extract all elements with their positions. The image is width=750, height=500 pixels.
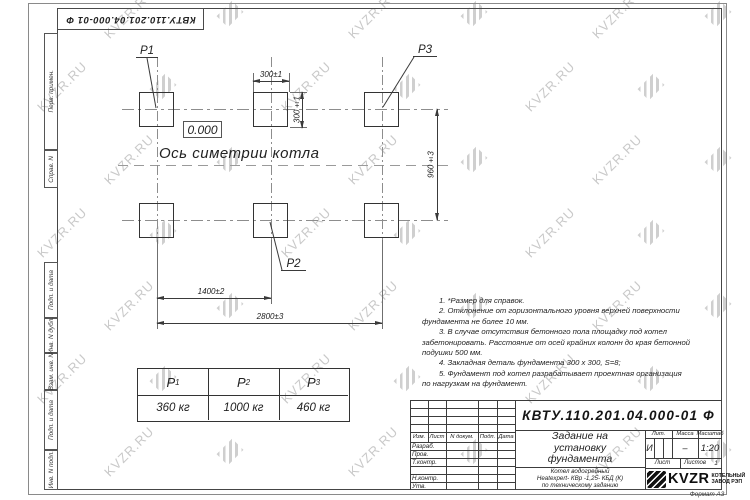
sheet-label: Лист	[645, 458, 680, 468]
symmetry-axis-label: Ось симетрии котла	[159, 145, 319, 162]
strip-label: Взам. инв. N	[48, 353, 55, 390]
extension-line	[157, 240, 158, 329]
sheets-label: Листов	[684, 460, 706, 466]
strip-label: Подп. и дата	[48, 270, 55, 310]
foundation-pad-p2	[253, 203, 288, 238]
scale-value: 1:20	[698, 438, 722, 458]
col-ndokum: N докум.	[446, 432, 478, 442]
load-table-value-p1: 360 кг	[138, 395, 208, 420]
level-mark-value: 0.000	[187, 123, 217, 137]
level-mark-box: 0.000	[183, 121, 222, 138]
note-line: по нагрузкам на фундамент.	[422, 379, 722, 389]
kvzr-logo-icon	[647, 471, 666, 488]
load-table-header-p2: P2	[208, 369, 279, 395]
drawing-sheet: КВТУ.110.201.04.000-01 Ф Перв. примен. С…	[0, 0, 750, 500]
strip-cell-perv-primen: Перв. примен.	[44, 33, 58, 150]
load-table-value-p3: 460 кг	[279, 395, 348, 420]
format-label: Формат А3	[683, 491, 731, 498]
dim-line-total-spacing	[157, 323, 382, 324]
dim-text-pad-height: 300±1	[292, 92, 302, 128]
mass-header: Масса	[672, 430, 698, 438]
row-empty	[410, 466, 448, 474]
dim-text-pad-width: 300±1	[245, 70, 297, 79]
foundation-pad-top-middle	[253, 92, 288, 127]
row-nkontr: Н.контр.	[410, 474, 448, 482]
strip-cell-podp-data-1: Подп. и дата	[44, 262, 58, 318]
point-label-p1: P1	[136, 45, 158, 58]
note-line: забетонировать. Расстояние от осей крайн…	[422, 338, 722, 348]
strip-label: Перв. примен.	[48, 70, 55, 112]
technical-notes: 1. *Размер для справок. 2. Отклонение от…	[422, 296, 722, 390]
col-list: Лист	[428, 432, 446, 442]
col-izm: Изм.	[410, 432, 428, 442]
dim-text-row-spacing: 960±3	[426, 143, 436, 187]
col-podp: Подп.	[478, 432, 497, 442]
row-prov: Пров.	[410, 450, 448, 458]
extension-line	[271, 240, 272, 304]
note-line: 4. Закладная деталь фундамента 300 х 300…	[422, 358, 722, 368]
extension-line	[382, 240, 383, 329]
dim-line-pad-width	[253, 81, 289, 82]
strip-label: Подп. и дата	[48, 400, 55, 440]
note-line: 2. Отклонение от горизонтального уровня …	[422, 306, 722, 316]
kvzr-logo-text: KVZR	[668, 471, 709, 487]
title-block-doc-number: КВТУ.110.201.04.000-01 Ф	[515, 400, 722, 430]
top-stamp-doc-number: КВТУ.110.201.04.000-01 Ф	[66, 14, 196, 25]
point-label-p3: P3	[413, 44, 437, 57]
scale-header: Масштаб	[698, 430, 722, 438]
dim-line-mid-spacing	[157, 298, 271, 299]
foundation-pad-p1	[139, 92, 174, 127]
boiler-symmetry-axis-line	[118, 165, 450, 166]
strip-label: Инв. N подл.	[48, 451, 55, 488]
dim-text-total-spacing: 2800±3	[236, 312, 304, 321]
point-label-p2: P2	[281, 258, 306, 271]
load-table: P1 P2 P3 360 кг 1000 кг 460 кг	[137, 368, 350, 422]
sheets-value: 1	[714, 460, 718, 467]
note-line: фундамента не более 10 мм.	[422, 317, 722, 327]
dim-line-pad-height	[302, 92, 303, 128]
strip-cell-inv-dubl: Инв. N дубл.	[44, 318, 58, 353]
strip-label: Справ. N	[48, 156, 55, 183]
col-data: Дата	[497, 432, 515, 442]
note-line: 3. В случае отсутствия бетонного пола пл…	[422, 327, 722, 337]
strip-cell-podp-data-2: Подп. и дата	[44, 390, 58, 450]
strip-cell-inv-podl: Инв. N подл.	[44, 450, 58, 490]
strip-cell-vzam-inv: Взам. инв. N	[44, 353, 58, 390]
row-tkontr: Т.контр.	[410, 458, 448, 466]
mass-value: –	[672, 438, 698, 458]
lit-header: Лит.	[645, 430, 672, 438]
foundation-pad-p3	[364, 92, 399, 127]
title-block-title: Задание на установку фундамента	[515, 431, 645, 466]
row-razrab: Разраб.	[410, 442, 448, 450]
kvzr-logo: KVZR КОТЕЛЬНЫЙ ЗАВОД РЭП	[647, 469, 721, 489]
note-line: 5. Фундамент под котел разрабатывает про…	[422, 369, 722, 379]
load-table-header-p1: P1	[138, 369, 208, 395]
strip-cell-sprav-n: Справ. N	[44, 150, 58, 188]
title-block-subtitle: Котел водогрейный Heatexpert- КВр -1,25-…	[515, 467, 645, 490]
foundation-pad-bottom-right	[364, 203, 399, 238]
load-table-header-p3: P3	[279, 369, 348, 395]
top-stamp-box: КВТУ.110.201.04.000-01 Ф	[57, 8, 204, 30]
row-utv: Утв.	[410, 482, 448, 490]
note-line: 1. *Размер для справок.	[422, 296, 722, 306]
foundation-pad-bottom-left	[139, 203, 174, 238]
strip-label: Инв. N дубл.	[48, 317, 55, 354]
kvzr-logo-caption: КОТЕЛЬНЫЙ ЗАВОД РЭП	[711, 473, 745, 486]
sheets-cell: Листов 1	[680, 458, 722, 468]
note-line: подушки 500 мм.	[422, 348, 722, 358]
lit-value: И	[645, 438, 654, 458]
load-table-value-p2: 1000 кг	[208, 395, 279, 420]
dim-line-row-spacing	[437, 109, 438, 220]
dim-text-mid-spacing: 1400±2	[177, 287, 245, 296]
